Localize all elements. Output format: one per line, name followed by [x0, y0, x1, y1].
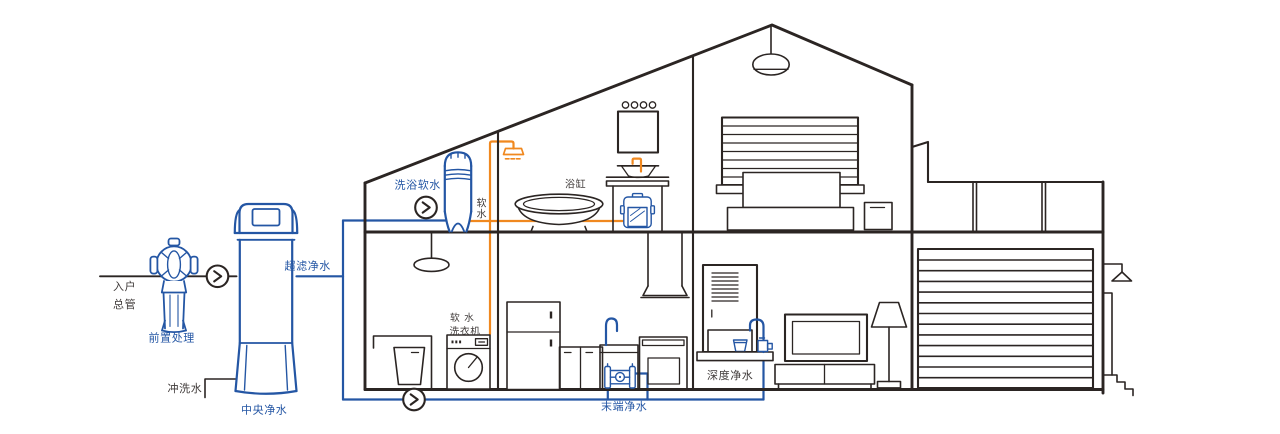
outdoor-steps — [1104, 375, 1133, 396]
kitchen-cabinets — [560, 347, 603, 390]
bath-softener-unit — [445, 152, 471, 231]
mirror-bulb-icon — [622, 102, 628, 108]
whole-house-water-system-diagram: 入户 总管 前置处理 冲洗水 中央净水 超滤净水 洗浴软水 软 水 浴缸 软 水… — [0, 0, 1280, 434]
kitchen-faucet — [606, 319, 617, 346]
outdoor-tap-icon — [1104, 264, 1132, 281]
under-sink-heater — [621, 194, 655, 228]
label-pre-treatment: 前置处理 — [149, 331, 195, 345]
bedroom-pendant-lamp — [753, 25, 789, 75]
label-inlet-line1: 入户 — [113, 279, 136, 293]
pre-treatment-filter — [150, 239, 197, 333]
label-central-purifier: 中央净水 — [241, 403, 287, 417]
tv-stand — [775, 365, 875, 389]
label-inlet-line2: 总管 — [113, 297, 136, 311]
garage — [912, 142, 1133, 396]
bathtub — [515, 194, 603, 231]
label-bath-softener: 洗浴软水 — [395, 178, 441, 192]
label-bathtub: 浴缸 — [565, 178, 586, 191]
label-flush-water: 冲洗水 — [168, 381, 203, 395]
label-ultrafiltration: 超滤净水 — [285, 259, 331, 273]
downpipe — [1104, 293, 1112, 375]
label-soft-water-char1: 软 — [477, 197, 488, 210]
water-dispenser-cabinet — [703, 265, 757, 352]
dispenser-shelf — [697, 352, 773, 361]
tv — [785, 315, 867, 362]
vanity-basin — [622, 166, 656, 178]
washing-machine — [447, 335, 490, 389]
flow-arrow-icon — [207, 266, 229, 288]
bed — [728, 173, 854, 231]
flush-water-pipe — [205, 379, 237, 398]
label-soft-washer-line2: 洗衣机 — [450, 325, 481, 338]
shower-head-icon — [504, 149, 524, 159]
terminal-purifier-unit — [605, 364, 635, 388]
mirror-bulb-icon — [631, 102, 637, 108]
laundry-pendant-lamp — [414, 232, 449, 271]
flow-arrow-icon — [403, 389, 425, 411]
headboard — [743, 173, 840, 208]
label-soft-water-char2: 水 — [477, 209, 488, 221]
diagram-canvas: 入户 总管 前置处理 冲洗水 中央净水 超滤净水 洗浴软水 软 水 浴缸 软 水… — [0, 0, 1280, 434]
fridge — [507, 302, 560, 390]
flow-arrow-icon — [415, 197, 437, 219]
label-soft-washer-line1: 软 水 — [450, 311, 475, 324]
bathroom-mirror — [618, 102, 658, 153]
label-deep-purifier: 深度净水 — [707, 368, 753, 382]
mattress — [728, 208, 854, 231]
mirror-bulb-icon — [640, 102, 646, 108]
central-purifier-unit — [235, 204, 297, 394]
range-hood — [641, 234, 689, 298]
floor-lamp — [872, 303, 907, 388]
mirror-bulb-icon — [649, 102, 655, 108]
label-terminal-purifier: 末端净水 — [601, 399, 647, 413]
laundry-sink — [374, 336, 432, 389]
nightstand — [865, 203, 893, 230]
